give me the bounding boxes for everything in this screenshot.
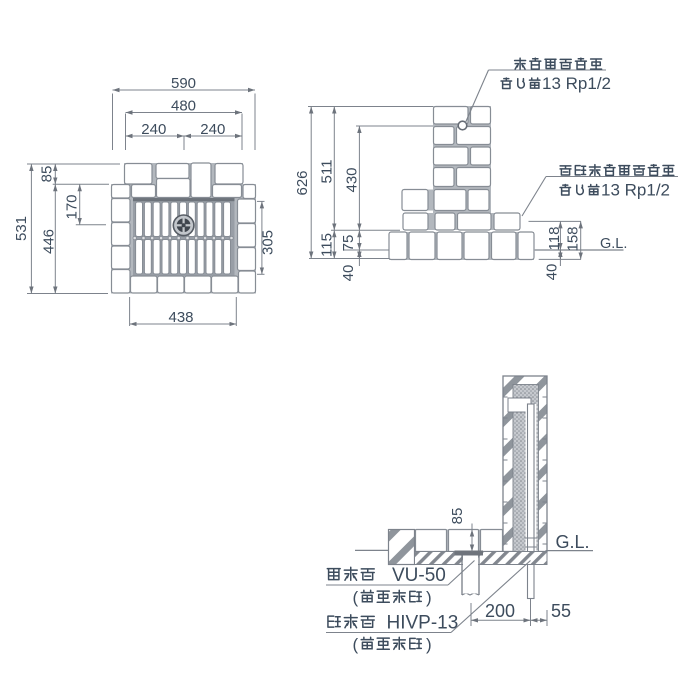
svg-text:G.L.: G.L.	[556, 532, 590, 552]
svg-text:446: 446	[41, 229, 58, 254]
svg-text:240: 240	[141, 121, 166, 138]
svg-text:305: 305	[260, 230, 277, 255]
svg-text:85: 85	[39, 166, 56, 183]
svg-text:G.L.: G.L.	[600, 236, 627, 252]
svg-text:480: 480	[171, 98, 196, 115]
svg-text:118: 118	[546, 227, 563, 251]
svg-text:511: 511	[318, 160, 335, 184]
svg-text:590: 590	[171, 75, 196, 92]
svg-text:75: 75	[340, 235, 357, 252]
svg-text:170: 170	[64, 194, 81, 219]
svg-text:200: 200	[485, 601, 515, 621]
svg-text:(: (	[353, 588, 359, 607]
svg-text:158: 158	[564, 226, 581, 251]
svg-text:626: 626	[294, 170, 311, 195]
svg-text:HIVP-13: HIVP-13	[387, 613, 459, 634]
svg-text:430: 430	[343, 167, 360, 192]
svg-text:240: 240	[200, 121, 225, 138]
svg-text:40: 40	[544, 264, 561, 281]
svg-text:(: (	[353, 635, 359, 654]
svg-text:85: 85	[449, 508, 466, 525]
svg-text:13 Rp1/2: 13 Rp1/2	[601, 181, 670, 200]
svg-text:40: 40	[340, 265, 357, 282]
svg-text:): )	[426, 635, 432, 654]
svg-text:531: 531	[13, 216, 30, 241]
svg-text:55: 55	[551, 601, 571, 621]
svg-text:): )	[426, 588, 432, 607]
svg-text:13 Rp1/2: 13 Rp1/2	[542, 74, 611, 93]
svg-text:VU-50: VU-50	[392, 565, 446, 586]
svg-text:438: 438	[168, 309, 193, 326]
svg-text:115: 115	[318, 233, 335, 257]
